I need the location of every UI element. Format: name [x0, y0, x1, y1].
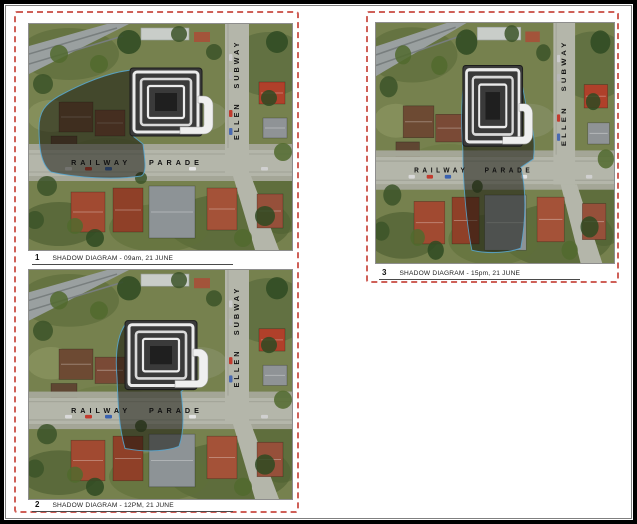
tree — [33, 321, 53, 341]
parked-car — [409, 175, 415, 179]
tree — [261, 337, 277, 353]
house-roof — [59, 349, 93, 379]
tree — [67, 218, 83, 234]
ellen-subway-label: ELLEN SUBWAY — [232, 286, 241, 388]
shed-roof — [194, 32, 210, 42]
tree — [90, 55, 108, 73]
parked-car — [445, 175, 451, 179]
tree — [536, 44, 550, 61]
ellen-subway-label: ELLEN SUBWAY — [232, 40, 241, 140]
parked-car — [189, 415, 196, 419]
tree — [171, 26, 187, 42]
parked-car — [261, 167, 268, 171]
ellen-subway-label: ELLEN SUBWAY — [561, 39, 568, 146]
tree — [410, 229, 424, 246]
tree — [274, 143, 292, 161]
figure-number: 3 — [382, 268, 386, 277]
tree — [395, 45, 411, 64]
house-roof — [207, 188, 237, 230]
shadow-diagram-right-frame: RAILWAY PARADEELLEN SUBWAY 3 SHADOW DIAG… — [366, 11, 619, 283]
house-roof — [403, 106, 434, 138]
house-roof — [588, 123, 610, 144]
parked-car — [85, 415, 92, 419]
figure-number: 2 — [35, 500, 39, 509]
tree — [274, 391, 292, 409]
tree — [86, 478, 104, 496]
parked-car — [261, 415, 268, 419]
aerial-photo-diagram-1: RAILWAY PARADEELLEN SUBWAY — [29, 24, 292, 250]
tree — [428, 241, 444, 260]
tree — [255, 206, 275, 226]
tree — [86, 229, 104, 247]
tree — [37, 424, 57, 444]
railway-parade-label: RAILWAY PARADE — [71, 158, 203, 167]
figure-caption-3: 3 SHADOW DIAGRAM - 15pm, 21 JUNE — [379, 268, 580, 280]
house-roof — [113, 188, 143, 232]
figure-number: 1 — [35, 253, 39, 262]
house-roof — [263, 365, 287, 385]
aerial-photo-diagram-3: RAILWAY PARADEELLEN SUBWAY — [376, 23, 614, 263]
tree — [380, 76, 398, 97]
aerial-photo-diagram-2: RAILWAY PARADEELLEN SUBWAY — [29, 270, 292, 499]
tree — [266, 277, 288, 299]
tree — [581, 216, 599, 237]
tree — [117, 276, 141, 300]
document-page: RAILWAY PARADEELLEN SUBWAY 1 SHADOW DIAG… — [0, 0, 637, 524]
figure-caption-text: SHADOW DIAGRAM - 09am, 21 JUNE — [52, 255, 173, 262]
shadow-diagrams-left-frame: RAILWAY PARADEELLEN SUBWAY 1 SHADOW DIAG… — [14, 11, 299, 513]
tree — [234, 478, 252, 496]
tree — [590, 30, 610, 53]
tree — [505, 25, 519, 42]
tree — [50, 45, 68, 63]
parked-car — [427, 175, 433, 179]
tree — [598, 149, 614, 168]
tree — [431, 56, 447, 75]
development-building — [125, 321, 208, 390]
parked-car — [105, 415, 112, 419]
tree — [37, 176, 57, 196]
parked-car — [65, 415, 72, 419]
tree — [33, 74, 53, 94]
parked-car — [189, 167, 196, 171]
tree — [383, 184, 401, 205]
parked-car — [586, 175, 592, 179]
figure-caption-text: SHADOW DIAGRAM - 12PM, 21 JUNE — [52, 502, 173, 509]
development-building — [463, 65, 533, 146]
tree — [206, 44, 222, 60]
tree — [234, 229, 252, 247]
house-roof — [149, 186, 195, 238]
tree — [206, 290, 222, 306]
figure-caption-2: 2 SHADOW DIAGRAM - 12PM, 21 JUNE — [32, 500, 233, 512]
tree — [90, 301, 108, 319]
figure-caption-text: SHADOW DIAGRAM - 15pm, 21 JUNE — [399, 270, 520, 277]
shed-roof — [525, 31, 539, 42]
tree — [67, 467, 83, 483]
tree — [562, 241, 578, 260]
development-building — [130, 68, 213, 136]
house-roof — [436, 114, 463, 142]
tree — [171, 272, 187, 288]
tree — [261, 90, 277, 106]
house-roof — [537, 197, 564, 242]
tree — [117, 30, 141, 54]
tree — [266, 31, 288, 53]
tree — [456, 29, 478, 54]
house-roof — [207, 436, 237, 479]
shed-roof — [194, 278, 210, 288]
tree — [586, 93, 600, 110]
railway-parade-label: RAILWAY PARADE — [71, 406, 203, 415]
house-roof — [263, 118, 287, 138]
figure-caption-1: 1 SHADOW DIAGRAM - 09am, 21 JUNE — [32, 253, 233, 265]
tree — [255, 454, 275, 474]
tree — [50, 291, 68, 309]
railway-parade-label: RAILWAY PARADE — [414, 166, 533, 175]
